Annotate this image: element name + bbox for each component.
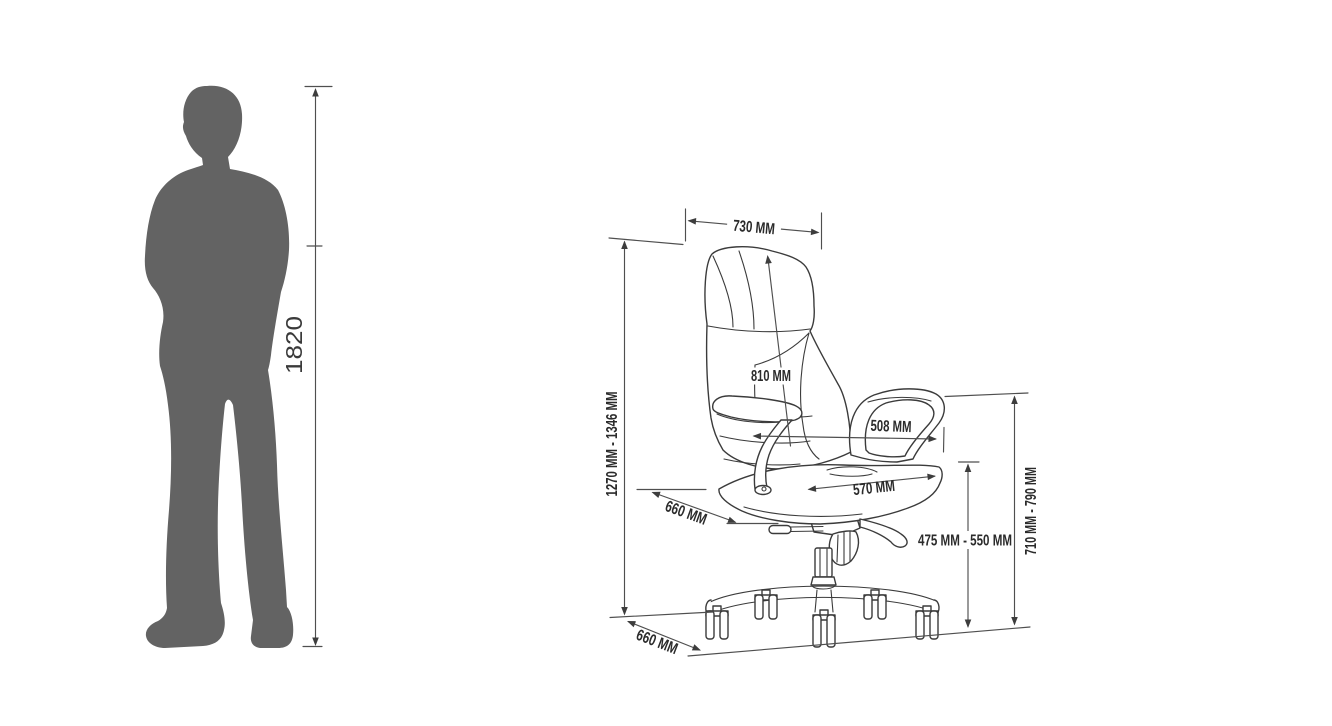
- dim-armrest-height: 710 MM - 790 MM: [945, 393, 1040, 626]
- chair-casters: [706, 590, 938, 647]
- dim-overall-height: 1270 MM - 1346 MM: [604, 238, 683, 616]
- backrest-height-label: 810 MM: [751, 368, 791, 385]
- dimension-diagram-canvas: 1820: [0, 0, 1332, 726]
- person-height-label: 1820: [281, 316, 307, 374]
- base-depth-label: 660 MM: [634, 627, 680, 658]
- caster: [755, 590, 777, 619]
- dim-base-depth: 660 MM: [626, 618, 702, 658]
- chair-gas-cylinder: [811, 548, 836, 585]
- chair-seat: [719, 465, 942, 524]
- dim-top-width: 730 MM: [686, 209, 822, 249]
- seat-height-label: 475 MM - 550 MM: [918, 533, 1012, 550]
- top-width-label: 730 MM: [732, 218, 775, 239]
- chair-line-art: [610, 247, 1030, 656]
- caster: [813, 610, 835, 647]
- armrest-height-label: 710 MM - 790 MM: [1023, 467, 1040, 555]
- person-silhouette: [145, 86, 293, 648]
- caster: [706, 606, 728, 639]
- person-height-dimension: 1820: [281, 87, 332, 647]
- caster: [916, 606, 938, 639]
- armrest-span-label: 508 MM: [870, 418, 912, 436]
- caster: [864, 590, 886, 619]
- overall-height-label: 1270 MM - 1346 MM: [604, 392, 621, 497]
- diagram-svg: 1820: [0, 0, 1332, 726]
- seat-depth-label: 660 MM: [663, 498, 709, 529]
